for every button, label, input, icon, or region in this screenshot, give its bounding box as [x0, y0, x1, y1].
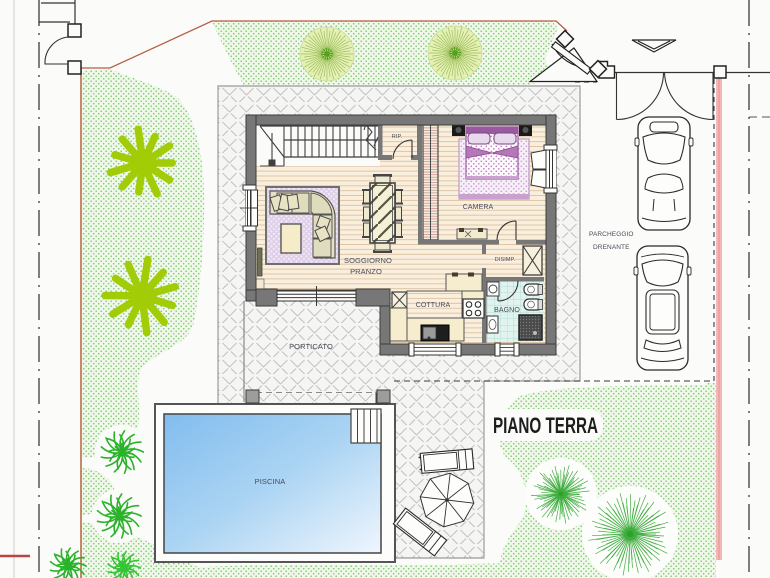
- svg-text:PIANO TERRA: PIANO TERRA: [493, 413, 598, 438]
- svg-text:CAMERA: CAMERA: [463, 204, 494, 211]
- svg-text:COTTURA: COTTURA: [416, 302, 451, 309]
- svg-text:SOGGIORNO: SOGGIORNO: [344, 256, 392, 265]
- svg-text:DISIMP.: DISIMP.: [495, 257, 516, 263]
- svg-text:PRANZO: PRANZO: [350, 267, 382, 276]
- svg-text:PARCHEGGIO: PARCHEGGIO: [589, 231, 634, 238]
- svg-text:PORTICATO: PORTICATO: [289, 342, 333, 351]
- svg-text:PISCINA: PISCINA: [255, 477, 286, 486]
- svg-text:RIP.: RIP.: [392, 134, 403, 140]
- svg-text:DRENANTE: DRENANTE: [593, 244, 630, 251]
- svg-text:BAGNO: BAGNO: [494, 307, 520, 314]
